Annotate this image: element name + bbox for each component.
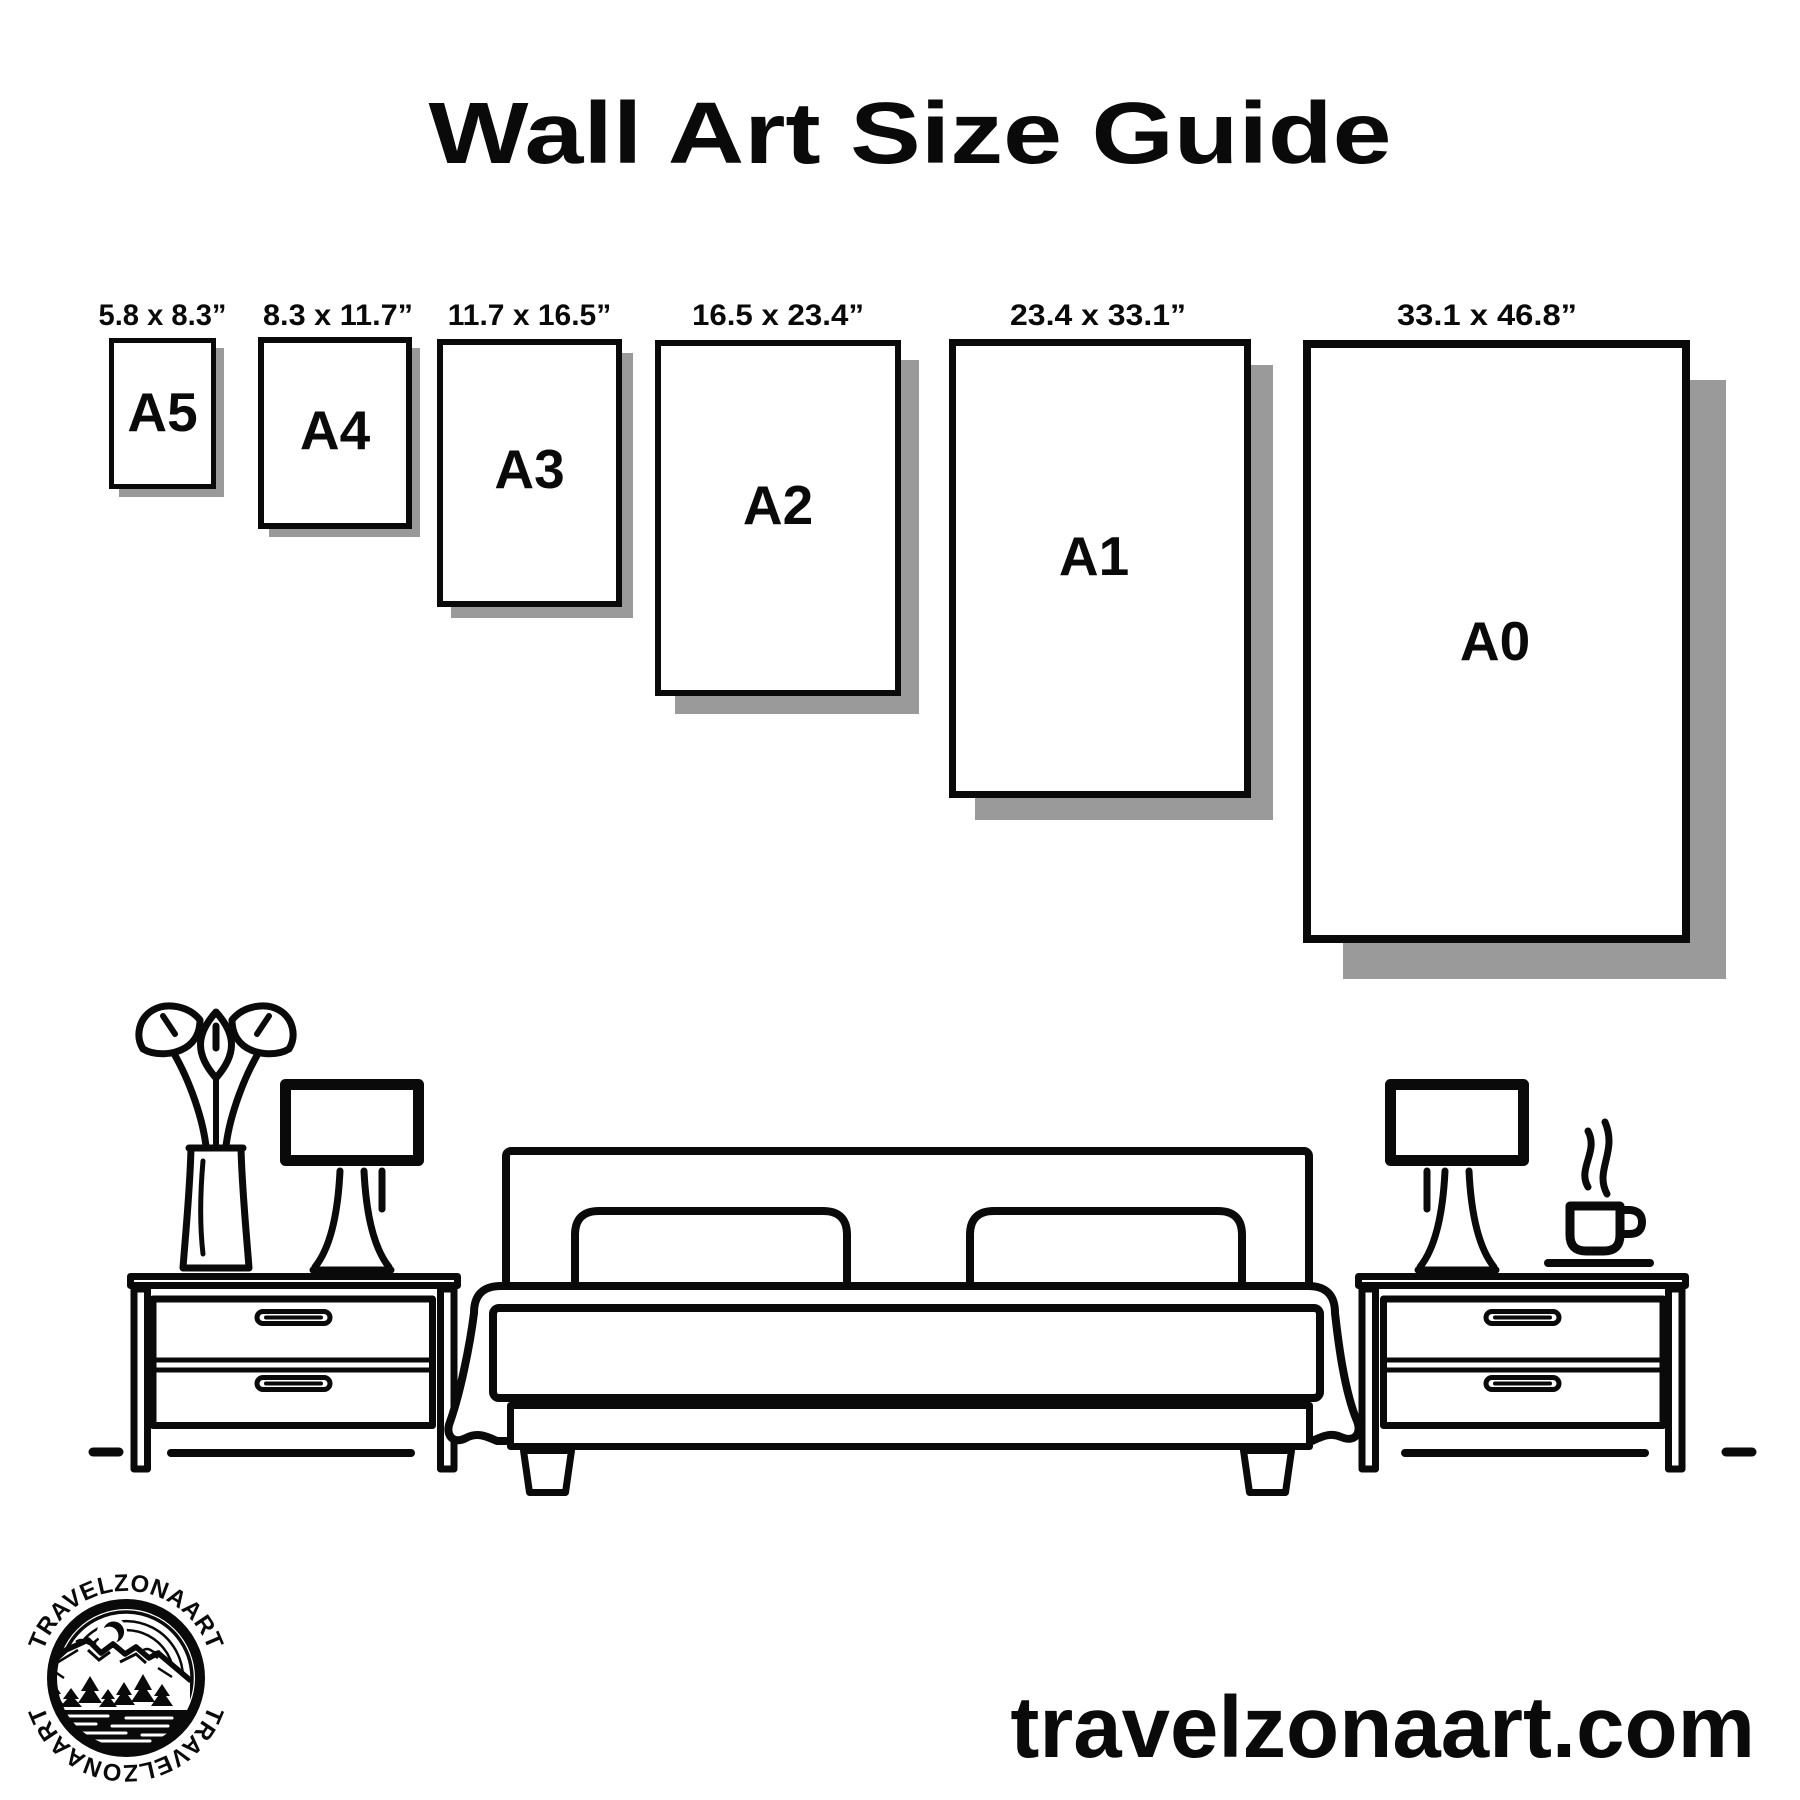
svg-text:23.4 x 33.1”: 23.4 x 33.1”	[1010, 299, 1186, 332]
svg-text:A5: A5	[127, 381, 197, 443]
svg-text:33.1 x 46.8”: 33.1 x 46.8”	[1397, 299, 1577, 332]
svg-text:A4: A4	[300, 399, 371, 461]
svg-text:16.5 x 23.4”: 16.5 x 23.4”	[692, 299, 864, 332]
svg-text:11.7 x 16.5”: 11.7 x 16.5”	[448, 299, 611, 332]
svg-text:A0: A0	[1460, 610, 1530, 672]
svg-text:travelzonaart.com: travelzonaart.com	[1010, 1679, 1755, 1776]
svg-text:A3: A3	[494, 438, 564, 500]
svg-text:Wall Art Size Guide: Wall Art Size Guide	[429, 85, 1392, 182]
svg-text:8.3 x 11.7”: 8.3 x 11.7”	[263, 299, 413, 332]
svg-text:5.8 x 8.3”: 5.8 x 8.3”	[99, 299, 227, 332]
svg-text:A2: A2	[743, 474, 813, 536]
svg-text:A1: A1	[1059, 525, 1129, 587]
